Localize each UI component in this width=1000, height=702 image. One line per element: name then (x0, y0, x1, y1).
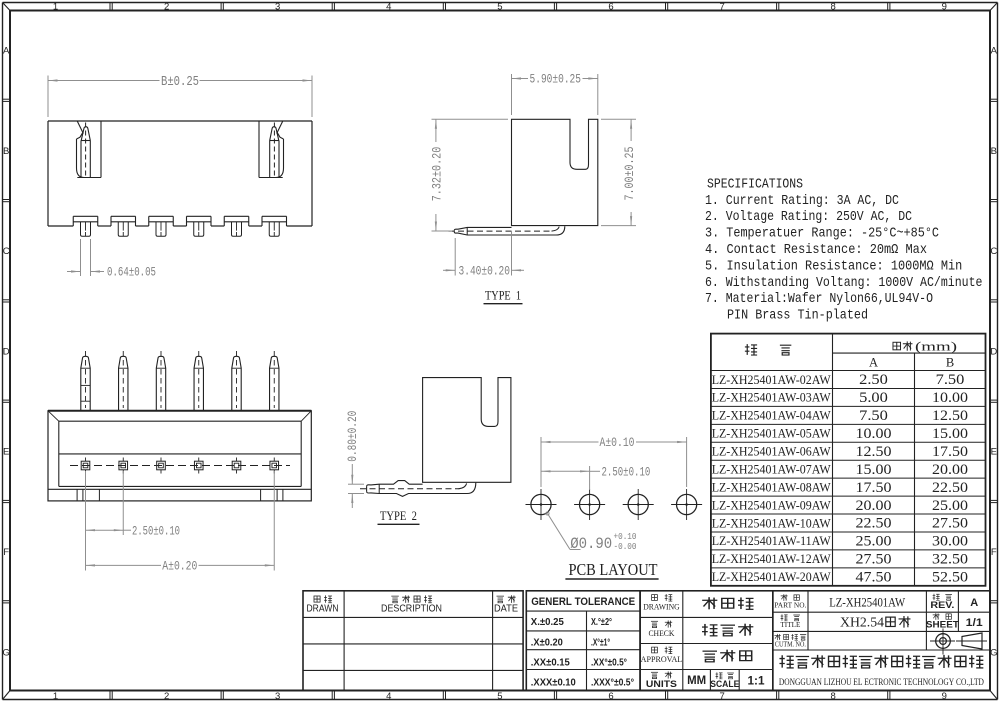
svg-text:2.50: 2.50 (859, 372, 888, 388)
svg-text:-0.00: -0.00 (614, 541, 637, 552)
svg-text:1:1: 1:1 (748, 674, 765, 688)
svg-text:0.80±0.20: 0.80±0.20 (345, 411, 360, 462)
svg-text:A: A (991, 46, 998, 57)
svg-text:15.00: 15.00 (932, 426, 968, 442)
svg-text:7.00±0.25: 7.00±0.25 (622, 147, 637, 201)
svg-text:LZ-XH25401AW-04AW: LZ-XH25401AW-04AW (712, 409, 831, 423)
svg-text:9: 9 (942, 1, 947, 12)
svg-text:9: 9 (942, 691, 947, 702)
svg-text:30.00: 30.00 (932, 534, 968, 550)
svg-text:.XX°±0.5°: .XX°±0.5° (591, 657, 627, 669)
svg-text:CHECK: CHECK (648, 628, 675, 638)
svg-text:.X±0.20: .X±0.20 (531, 637, 563, 649)
svg-text:3: 3 (275, 691, 280, 702)
svg-text:E: E (991, 447, 997, 458)
svg-text:25.00: 25.00 (856, 534, 892, 550)
svg-text:D: D (3, 346, 10, 357)
svg-text:LZ-XH25401AW-09AW: LZ-XH25401AW-09AW (712, 498, 831, 512)
svg-text:5: 5 (497, 691, 502, 702)
svg-text:12.50: 12.50 (932, 408, 968, 424)
svg-text:B: B (946, 356, 954, 370)
svg-text:6. Withstanding Voltang: 1000V: 6. Withstanding Voltang: 1000V AC/minute (705, 275, 983, 291)
svg-text:SHEET: SHEET (926, 620, 959, 631)
svg-text:F: F (3, 547, 9, 558)
svg-text:52.50: 52.50 (932, 570, 968, 586)
svg-text:20.00: 20.00 (932, 462, 968, 478)
svg-text:DATE: DATE (494, 604, 518, 615)
svg-text:7: 7 (719, 691, 724, 702)
svg-text:7. Material:Wafer Nylon66,UL94: 7. Material:Wafer Nylon66,UL94V-O (705, 291, 933, 307)
svg-text:LZ-XH25401AW-10AW: LZ-XH25401AW-10AW (712, 516, 831, 530)
svg-text:1: 1 (53, 691, 58, 702)
svg-text:C: C (990, 246, 997, 257)
svg-text:2: 2 (164, 691, 169, 702)
svg-text:E: E (3, 447, 9, 458)
svg-text:B: B (991, 146, 997, 157)
svg-text:DESCRIPTION: DESCRIPTION (381, 604, 442, 615)
svg-text:D: D (990, 346, 997, 357)
svg-text:Ø0.90: Ø0.90 (570, 535, 612, 553)
svg-text:G: G (990, 647, 997, 658)
svg-text:15.00: 15.00 (856, 462, 892, 478)
svg-text:22.50: 22.50 (932, 480, 968, 496)
svg-text:2: 2 (164, 1, 169, 12)
svg-text:TITLE: TITLE (780, 620, 800, 629)
svg-text:7.50: 7.50 (859, 408, 888, 424)
svg-text:GENERL TOLERANCE: GENERL TOLERANCE (531, 596, 635, 608)
svg-text:A: A (970, 597, 978, 609)
svg-text:3.40±0.20: 3.40±0.20 (459, 264, 511, 279)
svg-text:.X°±1°: .X°±1° (591, 637, 610, 649)
svg-text:27.50: 27.50 (856, 552, 892, 568)
svg-text:LZ-XH25401AW-11AW: LZ-XH25401AW-11AW (712, 534, 831, 548)
svg-text:B: B (3, 146, 9, 157)
svg-text:7.32±0.20: 7.32±0.20 (429, 147, 444, 202)
svg-text:4. Contact Resistance: 20mΩ Ma: 4. Contact Resistance: 20mΩ Max (705, 242, 927, 258)
svg-text:5.00: 5.00 (859, 390, 888, 406)
svg-text:47.50: 47.50 (856, 570, 892, 586)
svg-text:6: 6 (608, 691, 613, 702)
svg-text:TYPE 2: TYPE 2 (380, 508, 417, 523)
svg-text:DRAWING: DRAWING (643, 602, 679, 612)
svg-text:REV.: REV. (930, 600, 954, 611)
svg-text:3. Temperatuer Range: -25°C~+8: 3. Temperatuer Range: -25°C~+85°C (705, 226, 939, 242)
svg-text:CUTM. NO.: CUTM. NO. (775, 641, 806, 649)
svg-text:A±0.10: A±0.10 (600, 435, 635, 450)
svg-text:PART NO.: PART NO. (774, 601, 806, 610)
svg-text:1/1: 1/1 (966, 617, 983, 629)
svg-text:TYPE 1: TYPE 1 (485, 288, 521, 303)
svg-text:10.00: 10.00 (856, 426, 892, 442)
svg-text:5: 5 (497, 1, 502, 12)
svg-text:8: 8 (831, 691, 836, 702)
svg-text:MM: MM (687, 673, 706, 687)
svg-text:PCB LAYOUT: PCB LAYOUT (569, 560, 659, 579)
svg-text:LZ-XH25401AW-02AW: LZ-XH25401AW-02AW (712, 373, 831, 387)
svg-text:PIN Brass Tin-plated: PIN Brass Tin-plated (727, 308, 868, 324)
svg-text:A: A (869, 356, 878, 370)
svg-text:12.50: 12.50 (856, 444, 892, 460)
svg-text:UNITS: UNITS (646, 679, 677, 690)
svg-text:LZ-XH25401AW-07AW: LZ-XH25401AW-07AW (712, 462, 831, 476)
svg-text:B±0.25: B±0.25 (161, 75, 199, 90)
svg-text:LZ-XH25401AW-12AW: LZ-XH25401AW-12AW (712, 552, 831, 566)
svg-text:10.00: 10.00 (932, 390, 968, 406)
svg-text:XH2.54: XH2.54 (840, 614, 884, 629)
svg-text:7.50: 7.50 (936, 372, 965, 388)
svg-text:A±0.20: A±0.20 (162, 559, 197, 574)
svg-text:LZ-XH25401AW: LZ-XH25401AW (829, 595, 906, 610)
svg-text:1: 1 (53, 1, 58, 12)
svg-text:(mm): (mm) (915, 339, 957, 354)
svg-text:6: 6 (608, 1, 613, 12)
svg-text:22.50: 22.50 (856, 516, 892, 532)
svg-text:.XXX±0.10: .XXX±0.10 (531, 676, 576, 688)
svg-text:A: A (3, 46, 10, 57)
svg-text:LZ-XH25401AW-03AW: LZ-XH25401AW-03AW (712, 391, 831, 405)
svg-text:2. Voltage Rating: 250V AC, DC: 2. Voltage Rating: 250V AC, DC (705, 209, 912, 225)
svg-text:5. Insulation Resistance: 1000: 5. Insulation Resistance: 1000MΩ Min (705, 258, 962, 274)
svg-text:DONGGUAN LIZHOU EL ECTRONIC TE: DONGGUAN LIZHOU EL ECTRONIC TECHNOLOGY C… (779, 678, 984, 688)
svg-text:LZ-XH25401AW-20AW: LZ-XH25401AW-20AW (712, 570, 831, 584)
svg-text:17.50: 17.50 (932, 444, 968, 460)
svg-text:27.50: 27.50 (932, 516, 968, 532)
svg-text:X.±0.25: X.±0.25 (531, 616, 564, 628)
svg-text:X.°±2°: X.°±2° (591, 616, 612, 628)
svg-text:17.50: 17.50 (856, 480, 892, 496)
svg-text:F: F (991, 547, 997, 558)
svg-text:7: 7 (719, 1, 724, 12)
svg-text:8: 8 (831, 1, 836, 12)
svg-text:4: 4 (386, 691, 391, 702)
svg-text:SPECIFICATIONS: SPECIFICATIONS (707, 176, 803, 192)
svg-text:0.64±0.05: 0.64±0.05 (107, 265, 156, 280)
svg-text:LZ-XH25401AW-08AW: LZ-XH25401AW-08AW (712, 480, 831, 494)
svg-text:2.50±0.10: 2.50±0.10 (132, 523, 180, 538)
svg-text:4: 4 (386, 1, 391, 12)
svg-text:3: 3 (275, 1, 280, 12)
svg-text:DRAWN: DRAWN (307, 604, 339, 615)
svg-text:G: G (3, 647, 10, 658)
svg-text:LZ-XH25401AW-06AW: LZ-XH25401AW-06AW (712, 445, 831, 459)
svg-text:.XX±0.15: .XX±0.15 (531, 657, 570, 669)
svg-text:20.00: 20.00 (856, 498, 892, 514)
svg-text:5.90±0.25: 5.90±0.25 (530, 72, 582, 87)
svg-text:2.50±0.10: 2.50±0.10 (602, 465, 651, 480)
svg-text:APPROVAL: APPROVAL (641, 654, 683, 664)
svg-text:1. Current Rating: 3A AC, DC: 1. Current Rating: 3A AC, DC (705, 193, 899, 209)
svg-text:32.50: 32.50 (932, 552, 968, 568)
svg-text:25.00: 25.00 (932, 498, 968, 514)
svg-text:C: C (3, 246, 10, 257)
svg-text:SCALE: SCALE (710, 679, 739, 689)
svg-text:LZ-XH25401AW-05AW: LZ-XH25401AW-05AW (712, 427, 831, 441)
svg-text:.XXX°±0.5°: .XXX°±0.5° (591, 676, 634, 688)
